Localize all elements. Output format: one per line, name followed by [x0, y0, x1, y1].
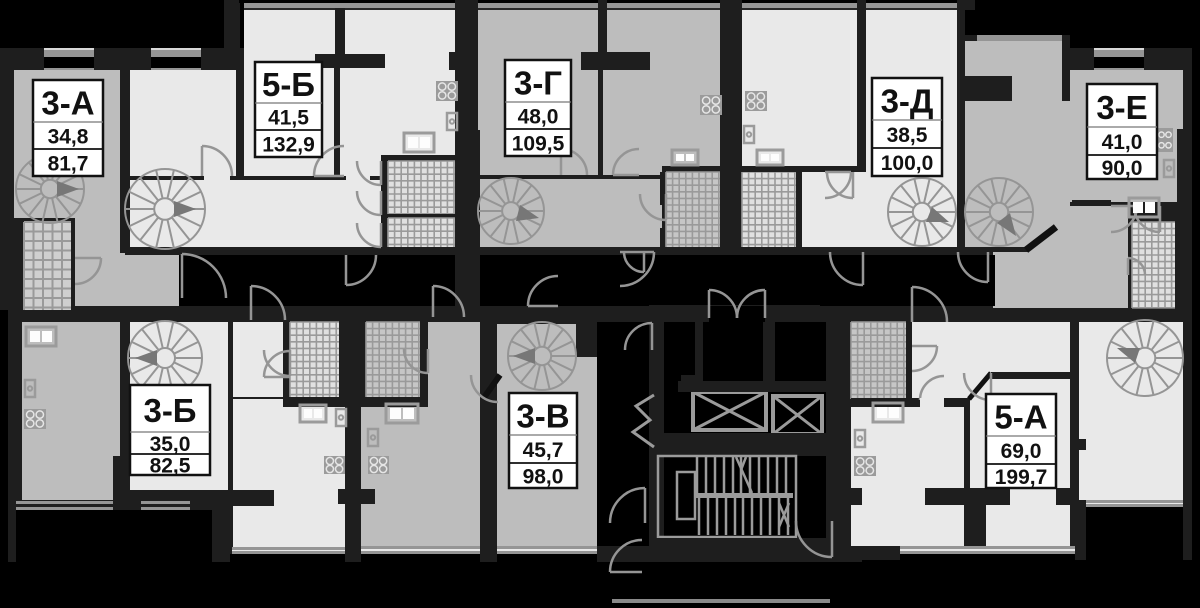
svg-text:90,0: 90,0 — [1102, 157, 1143, 180]
svg-text:41,0: 41,0 — [1102, 131, 1143, 154]
svg-text:48,0: 48,0 — [518, 106, 559, 129]
svg-text:3-Е: 3-Е — [1096, 89, 1147, 126]
svg-text:3-Д: 3-Д — [881, 82, 934, 119]
svg-text:3-А: 3-А — [41, 84, 94, 121]
svg-text:69,0: 69,0 — [1001, 440, 1042, 463]
svg-text:3-В: 3-В — [516, 397, 569, 434]
svg-text:34,8: 34,8 — [48, 126, 89, 149]
svg-text:41,5: 41,5 — [268, 107, 309, 130]
svg-text:82,5: 82,5 — [150, 455, 191, 478]
svg-text:132,9: 132,9 — [262, 134, 315, 157]
svg-text:81,7: 81,7 — [48, 153, 89, 176]
svg-text:3-Б: 3-Б — [143, 392, 196, 429]
svg-text:35,0: 35,0 — [150, 433, 191, 456]
svg-text:3-Г: 3-Г — [514, 64, 562, 101]
svg-text:5-Б: 5-Б — [262, 66, 315, 103]
svg-text:199,7: 199,7 — [995, 466, 1048, 489]
svg-text:98,0: 98,0 — [523, 466, 564, 489]
svg-text:100,0: 100,0 — [881, 152, 934, 175]
svg-text:38,5: 38,5 — [887, 124, 928, 147]
svg-text:109,5: 109,5 — [512, 133, 565, 156]
svg-text:5-А: 5-А — [994, 398, 1047, 435]
svg-text:45,7: 45,7 — [523, 439, 564, 462]
